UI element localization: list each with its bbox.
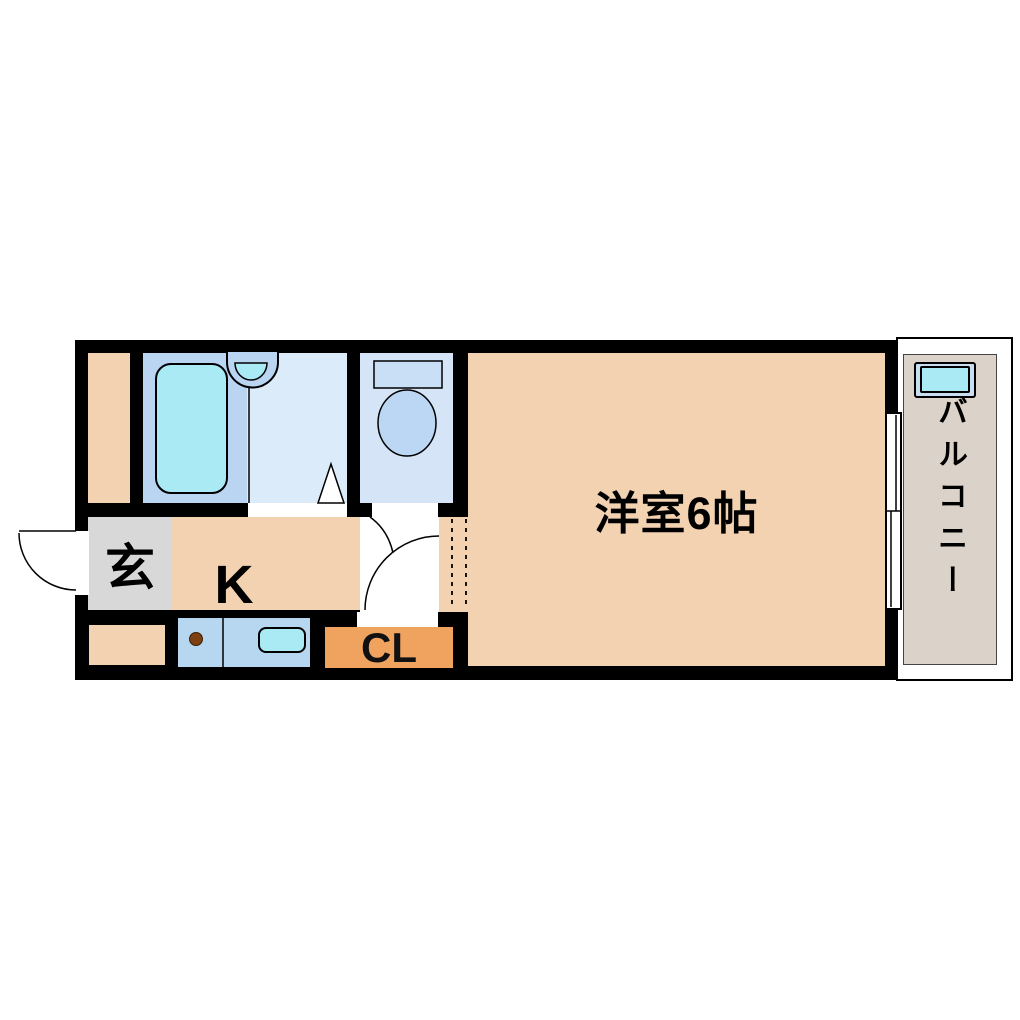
- bathtub: [155, 363, 228, 494]
- kitchen-sink: [258, 627, 306, 653]
- washroom-floor: [247, 353, 347, 503]
- toilet-room-floor: [360, 353, 453, 503]
- main-room-label: 洋室6帖: [468, 353, 885, 666]
- kitchen-label: K: [200, 558, 268, 612]
- toilet-doorway: [372, 503, 438, 517]
- closet-label: CL: [361, 624, 417, 672]
- washroom-doorway: [248, 503, 347, 517]
- entrance-door-arc: [19, 533, 76, 590]
- service-strip-floor: [88, 353, 130, 503]
- closet-room: CL: [325, 627, 453, 668]
- floor-plan: バルコニー 玄 CL: [0, 0, 1020, 1020]
- washing-machine-pan-inner: [920, 366, 970, 393]
- entrance-room: 玄: [88, 517, 172, 610]
- stove-burner: [189, 632, 203, 646]
- shoe-storage: [89, 625, 165, 665]
- passage-opening: [439, 517, 468, 612]
- hallway-floor: [360, 517, 439, 612]
- entrance-label: 玄: [105, 528, 155, 600]
- entrance-doorway: [75, 531, 89, 595]
- balcony-label: バルコニー: [931, 396, 971, 631]
- closet-doorway: [357, 612, 438, 627]
